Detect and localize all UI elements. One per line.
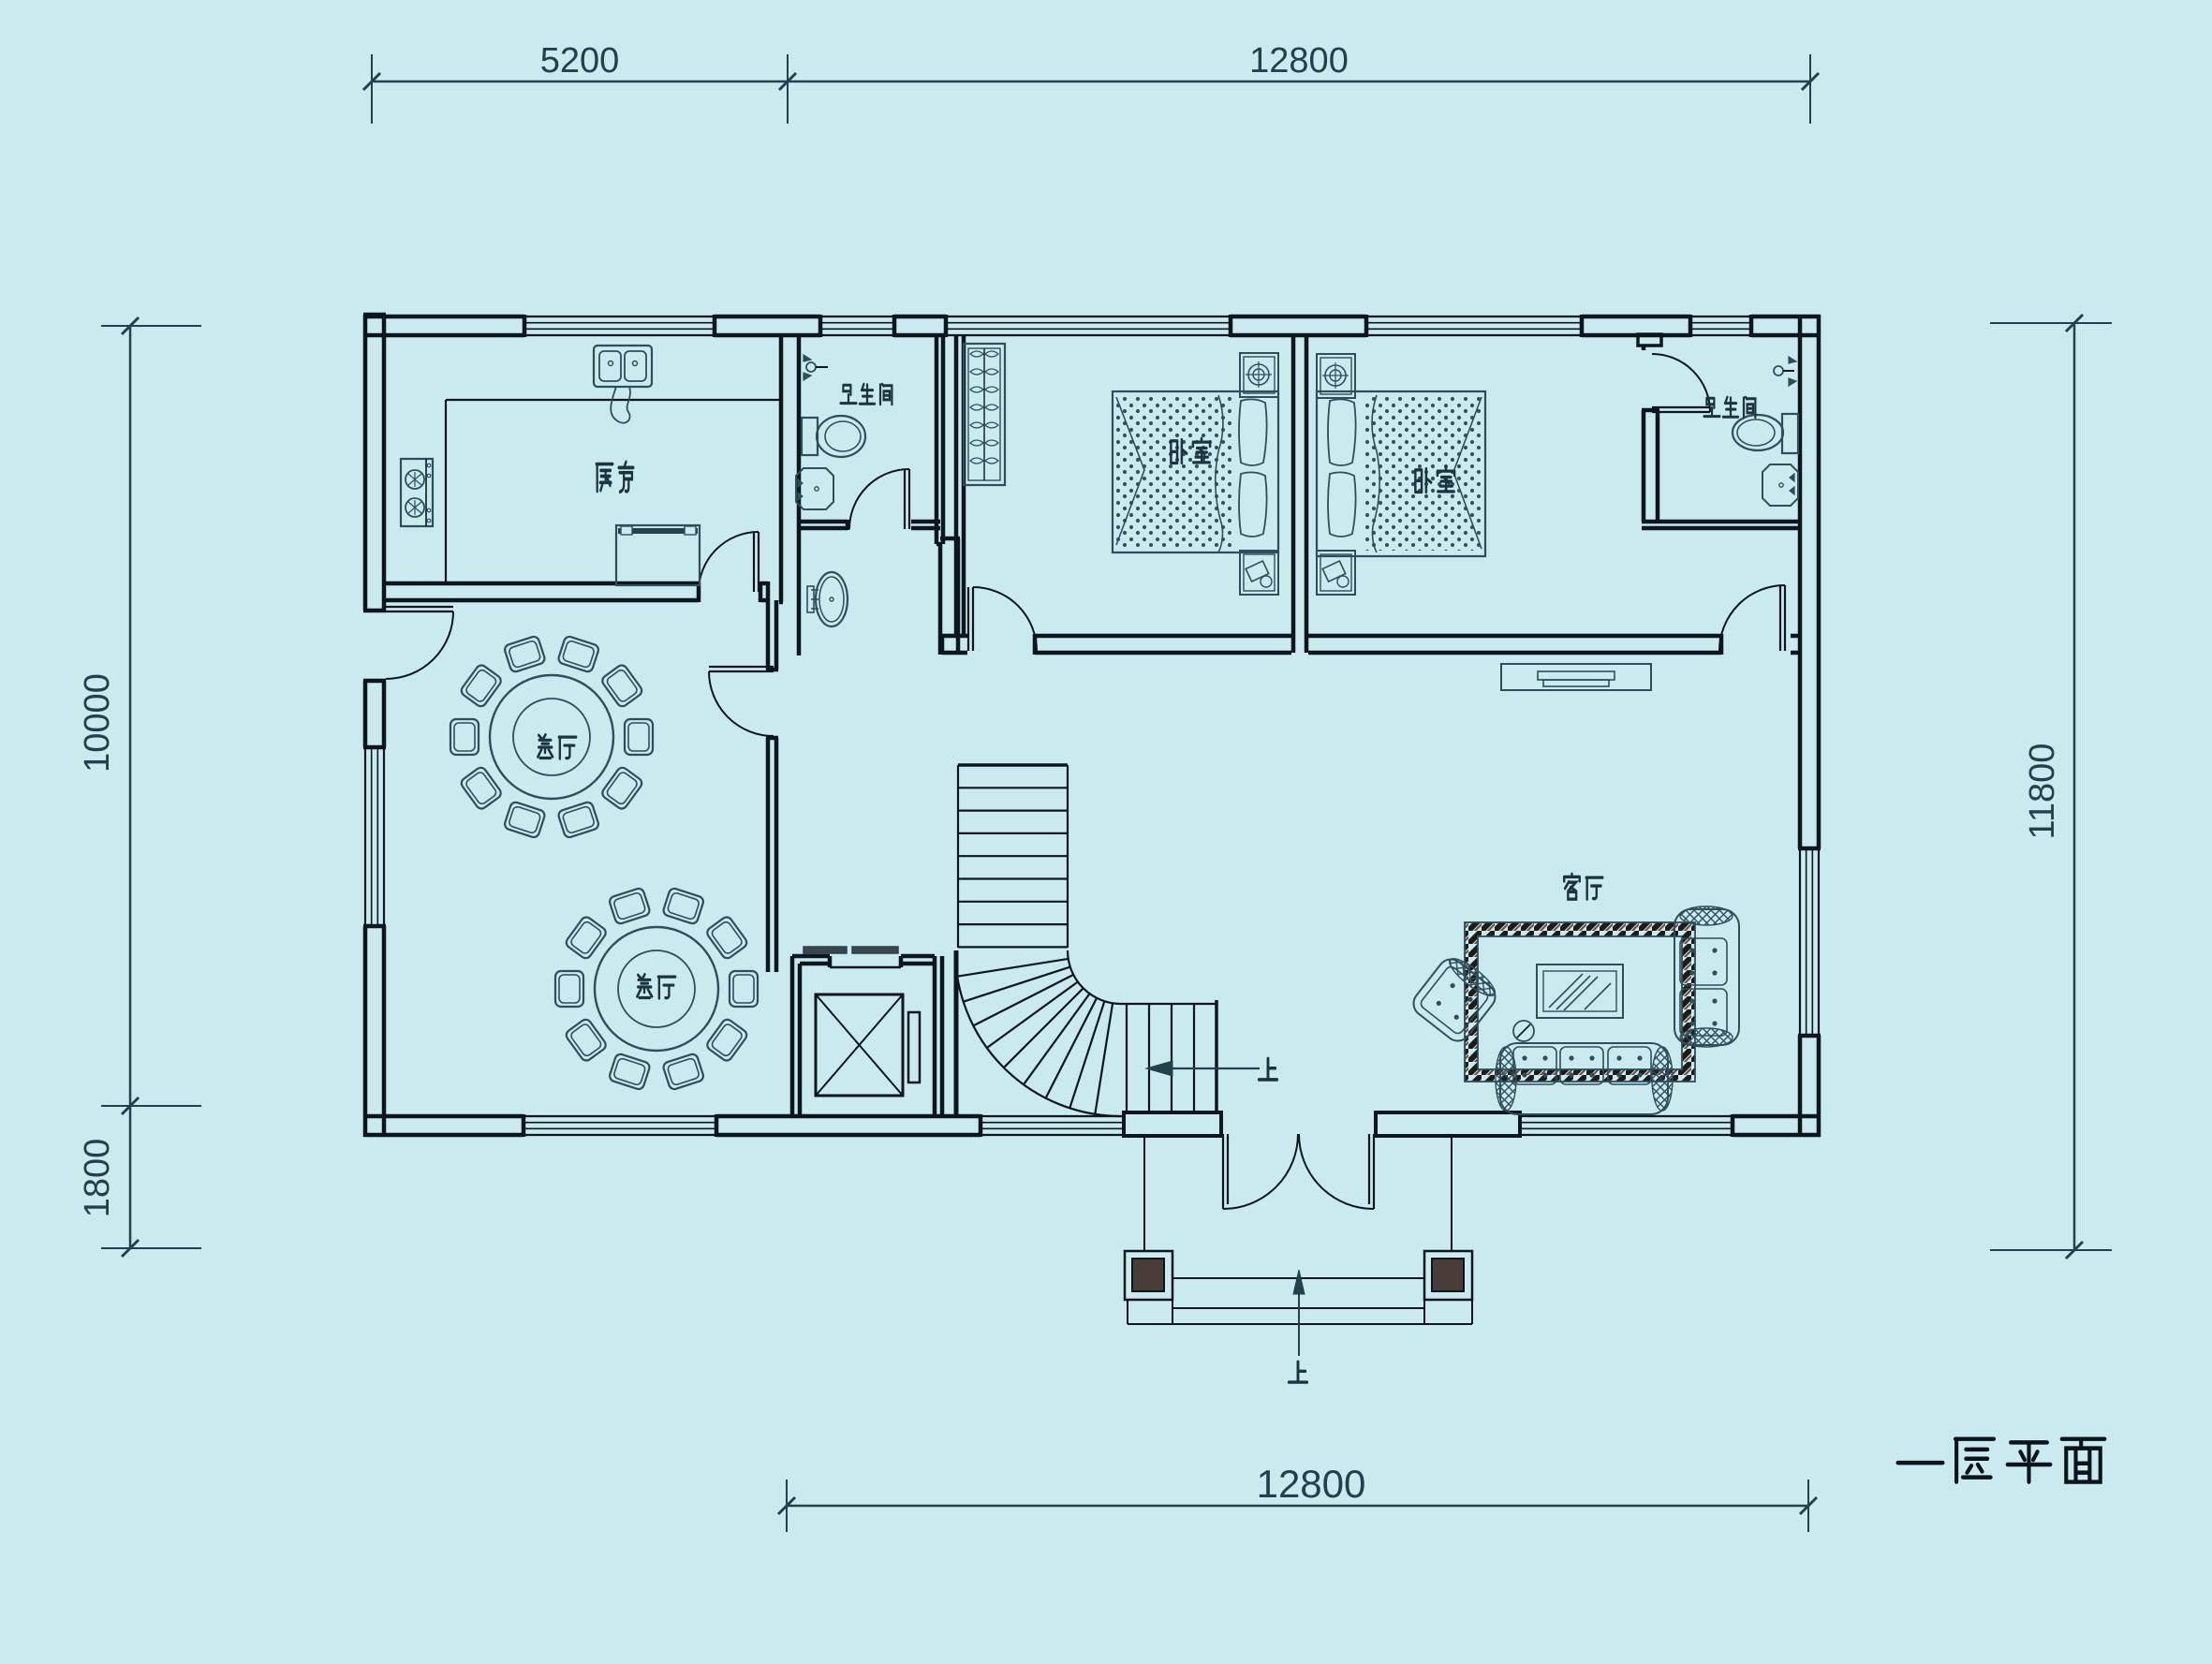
svg-text:12800: 12800 <box>1249 41 1349 81</box>
svg-text:10000: 10000 <box>78 673 117 773</box>
svg-text:12800: 12800 <box>1257 1462 1366 1506</box>
svg-text:5200: 5200 <box>540 41 620 81</box>
svg-text:1800: 1800 <box>78 1139 117 1218</box>
svg-text:11800: 11800 <box>2023 744 2062 840</box>
